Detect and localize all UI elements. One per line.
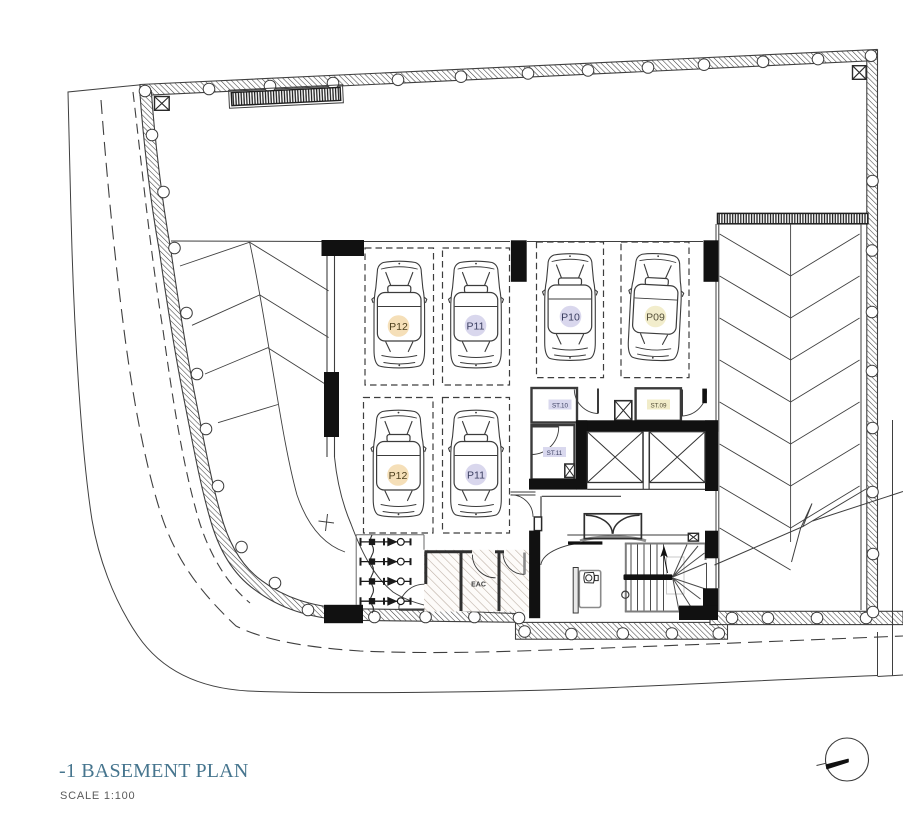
svg-text:P09: P09 <box>646 312 665 324</box>
svg-text:SCALE 1:100: SCALE 1:100 <box>60 790 135 802</box>
svg-text:P11: P11 <box>467 470 485 482</box>
svg-text:ST.10: ST.10 <box>552 402 569 409</box>
svg-text:ST.09: ST.09 <box>650 402 667 409</box>
svg-text:P12: P12 <box>389 470 408 482</box>
svg-text:P10: P10 <box>561 312 580 324</box>
svg-text:P12: P12 <box>389 321 408 333</box>
svg-text:EAC: EAC <box>471 582 486 589</box>
svg-text:P11: P11 <box>467 321 485 333</box>
svg-text:ST.11: ST.11 <box>547 450 563 457</box>
svg-text:-1 BASEMENT PLAN: -1 BASEMENT PLAN <box>59 760 249 782</box>
